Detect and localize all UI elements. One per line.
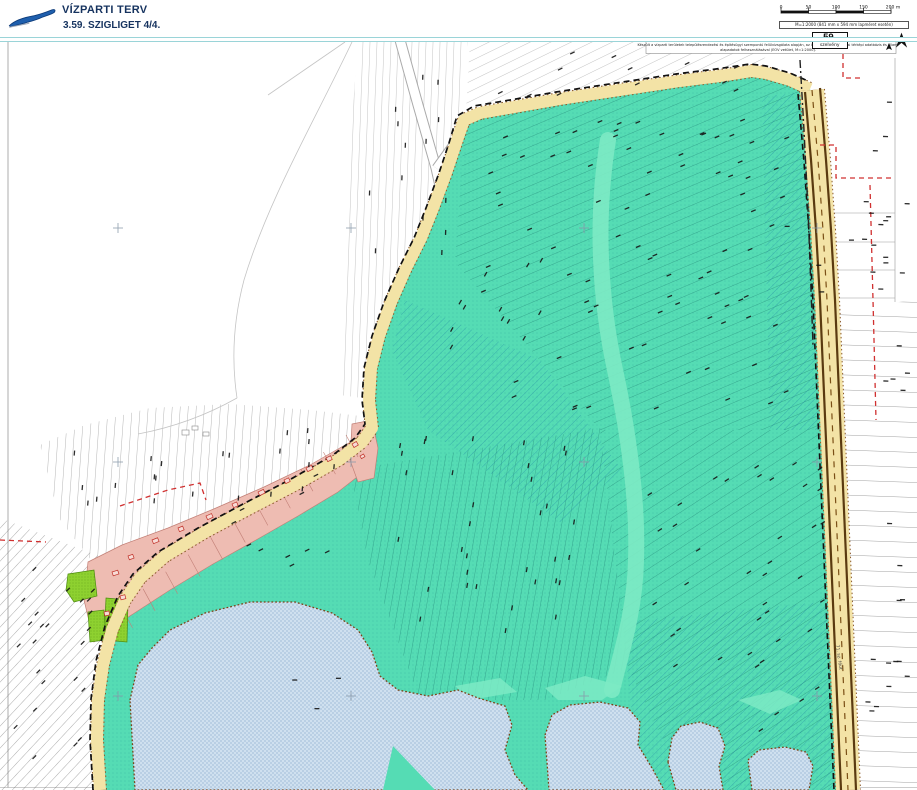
scale-note: M=1:2000 (841 mm x 594 mm lapméret eseté… xyxy=(779,21,909,29)
plan-title: VÍZPARTI TERV xyxy=(62,4,160,16)
balaton-logo xyxy=(6,5,56,33)
current-sheet-label: szelvény xyxy=(820,43,840,48)
header-bar: VÍZPARTI TERV 3.59. SZIGLIGET 4/4. 0 50 … xyxy=(0,0,917,37)
header-separator xyxy=(0,37,917,42)
scale-and-nav: 0 50 100 150 200 m M=1:2000 (841 mm x 59… xyxy=(779,2,909,51)
scale-bar: 0 50 100 150 200 m xyxy=(779,4,903,15)
sheet-subtitle: 3.59. SZIGLIGET 4/4. xyxy=(63,20,160,31)
plan-sheet: 71. sz. főút Készült a vízparti területe… xyxy=(0,0,917,790)
map-canvas: 71. sz. főút Készült a vízparti területe… xyxy=(0,0,917,790)
scale-tick-200: 200 m xyxy=(886,5,900,11)
scale-tick-150: 150 xyxy=(859,5,868,11)
scale-tick-100: 100 xyxy=(832,5,841,11)
scale-tick-50: 50 xyxy=(806,5,812,11)
scale-tick-0: 0 xyxy=(780,5,783,11)
